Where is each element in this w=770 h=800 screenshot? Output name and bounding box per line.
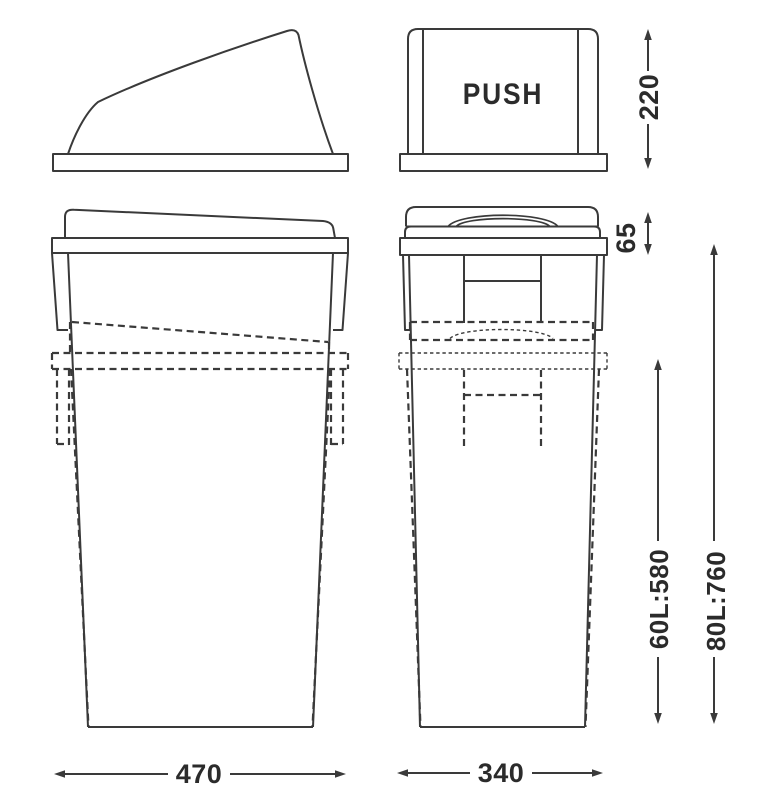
dim-collar-height-label: 65 (611, 222, 641, 253)
diagram-canvas: PUSH 220 (0, 0, 770, 800)
front-lid-base-plate (400, 154, 607, 171)
front-60l-lid-band (410, 322, 593, 340)
dim-collar-height: 65 (611, 212, 652, 255)
bin-dimension-diagram: PUSH 220 (0, 0, 770, 800)
front-view: PUSH (399, 29, 607, 727)
dim-height-60l-label: 60L:580 (644, 549, 674, 649)
dim-height-80l-label: 80L:760 (701, 551, 731, 651)
front-60l-flap-dome (450, 330, 553, 339)
side-60l-body-sides (71, 369, 330, 727)
front-bin-lid-band (405, 227, 600, 239)
arrowhead-right-icon (592, 769, 603, 777)
front-60l-dashed-overlay (399, 322, 607, 727)
arrowhead-down-icon (654, 713, 662, 724)
arrowhead-right-icon (335, 770, 346, 778)
arrowhead-left-icon (54, 770, 65, 778)
side-60l-handle-tab-right (331, 369, 343, 447)
dim-width-side: 470 (54, 759, 346, 789)
dim-width-side-label: 470 (176, 759, 223, 789)
front-60l-rim-band (399, 353, 607, 369)
dim-lid-height-label: 220 (634, 74, 664, 121)
dim-height-60l: 60L:580 (644, 359, 674, 724)
arrowhead-down-icon (644, 244, 652, 255)
front-bin-body-outline (409, 255, 597, 727)
front-bin-collar (400, 238, 607, 255)
front-bin-flap-dome (448, 215, 558, 226)
side-bin-skirt-right (333, 253, 348, 330)
dim-height-80l: 80L:760 (701, 244, 731, 724)
side-lid-base-plate (53, 154, 348, 171)
push-label: PUSH (463, 76, 543, 110)
arrowhead-down-icon (710, 713, 718, 724)
front-bin-lid-top (406, 207, 598, 227)
side-bin-skirt-left (52, 253, 68, 330)
front-60l-mechanism (464, 370, 541, 447)
dim-lid-height: 220 (634, 29, 664, 169)
side-bin-collar (52, 238, 348, 253)
dimensions: 220 65 60L:580 80L:760 470 (54, 29, 731, 789)
dim-width-front-label: 340 (478, 758, 525, 788)
side-60l-rim-band (52, 353, 348, 369)
arrowhead-down-icon (644, 158, 652, 169)
side-lid-outline (68, 30, 333, 154)
side-60l-handle-tab-left (57, 369, 69, 447)
side-60l-dashed-overlay (52, 322, 348, 727)
front-60l-body-sides (407, 369, 599, 727)
side-bin-lid-top (65, 210, 335, 238)
front-bin-flap-mechanism (464, 255, 541, 323)
arrowhead-left-icon (397, 769, 408, 777)
side-60l-lid-line (70, 322, 329, 353)
side-view (52, 30, 348, 727)
dim-width-front: 340 (397, 758, 603, 788)
